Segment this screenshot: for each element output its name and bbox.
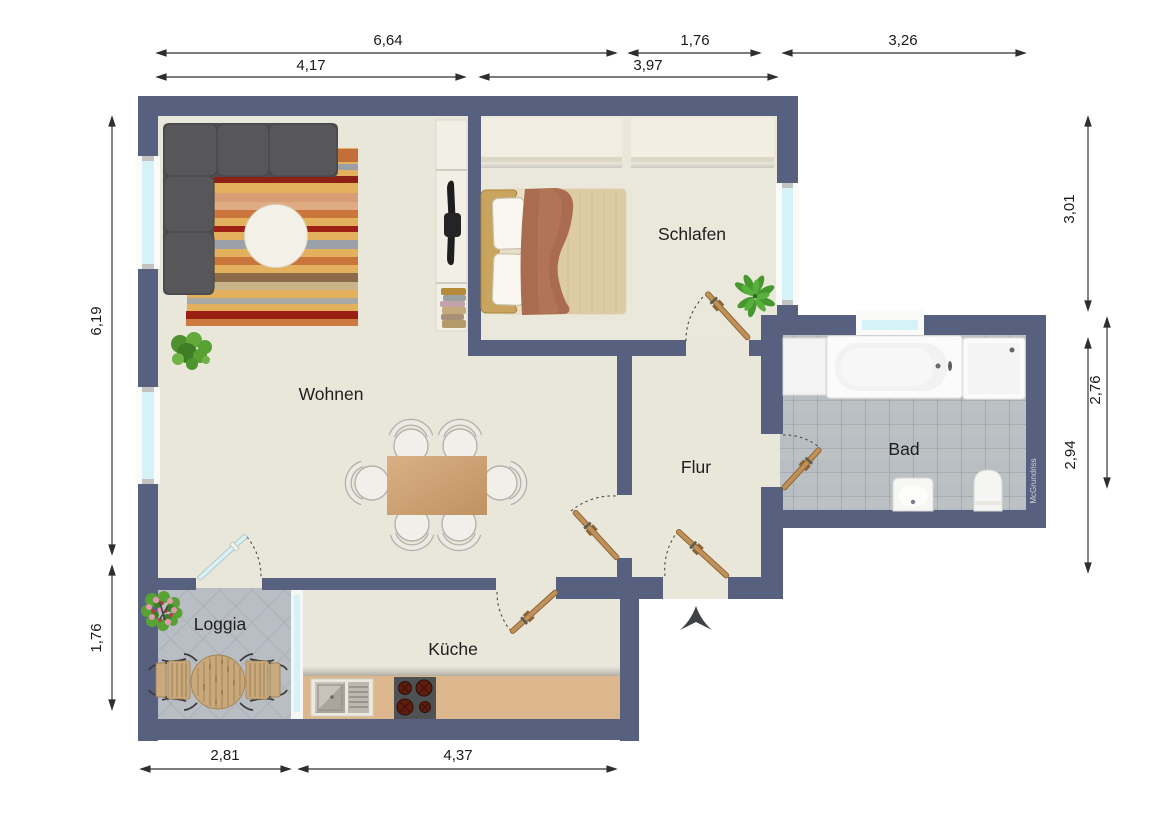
svg-text:1,76: 1,76 — [88, 623, 105, 652]
svg-text:2,76: 2,76 — [1087, 375, 1104, 404]
svg-text:Bad: Bad — [888, 439, 919, 459]
svg-text:McGrundriss: McGrundriss — [1029, 458, 1038, 503]
svg-text:Küche: Küche — [428, 639, 478, 659]
svg-text:6,19: 6,19 — [88, 306, 105, 335]
svg-text:4,17: 4,17 — [296, 57, 325, 74]
svg-text:3,01: 3,01 — [1061, 194, 1078, 223]
svg-text:4,37: 4,37 — [443, 747, 472, 764]
svg-text:2,81: 2,81 — [210, 747, 239, 764]
svg-text:3,97: 3,97 — [633, 57, 662, 74]
svg-text:6,64: 6,64 — [373, 32, 402, 49]
svg-text:2,94: 2,94 — [1062, 440, 1079, 469]
svg-text:Wohnen: Wohnen — [299, 384, 364, 404]
svg-text:3,26: 3,26 — [888, 32, 917, 49]
svg-text:1,76: 1,76 — [680, 32, 709, 49]
svg-text:Flur: Flur — [681, 457, 711, 477]
svg-text:Loggia: Loggia — [194, 614, 247, 634]
svg-text:Schlafen: Schlafen — [658, 224, 726, 244]
